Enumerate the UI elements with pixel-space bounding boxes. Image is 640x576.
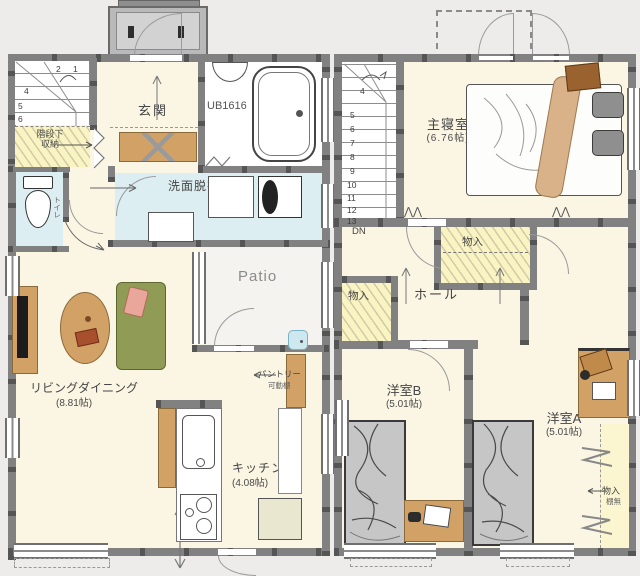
f2-stair-number: 12 (347, 205, 356, 215)
patio-door-opening (214, 346, 254, 351)
living-label: リビングダイニング (30, 382, 138, 396)
bath-window (321, 78, 335, 142)
f1-wall-washroom-left (108, 166, 115, 182)
room-b-window-bottom (344, 543, 436, 559)
hall-arrow-1 (400, 262, 412, 304)
pantry-arrow (250, 371, 276, 379)
f1-wall-genkan-bath (198, 58, 205, 170)
master-pillow-2 (592, 130, 624, 156)
f1-stair-number: 5 (18, 101, 23, 111)
bath-fold-door (206, 156, 236, 168)
room-a-window-right (627, 360, 640, 416)
refrigerator (258, 498, 302, 540)
closet-top (441, 227, 530, 283)
closet-top-label: 物入 (462, 236, 483, 248)
living-deck-hatch (14, 558, 110, 568)
room-b-sill-hatch (350, 558, 432, 567)
f2-stair-number: 5 (350, 110, 355, 120)
room-a-sill-hatch (506, 558, 570, 567)
kitchen-door-opening (218, 549, 256, 555)
terrace-opening-mask-2 (533, 56, 569, 60)
closet-slide-mark: ⋀⋀ (404, 206, 422, 219)
roomb-door-opening (410, 341, 448, 348)
closet-right-note: 棚無 (606, 498, 621, 507)
kitchen-faucet (196, 458, 205, 467)
f2-stair-number: 8 (350, 152, 355, 162)
closet-left-label: 物入 (348, 290, 369, 302)
f2-stair-number: 9 (350, 166, 355, 176)
f2-stair-number: 13 (347, 216, 356, 226)
stairs-dn-label: DN (352, 227, 366, 238)
room-b-laptop (423, 504, 452, 527)
floor-plan-canvas: 2 1 4 5 6 階段下 収納 トイレ 玄関 (0, 0, 640, 576)
f1-left-window-1 (5, 256, 20, 296)
garden-fixture-dot (300, 340, 303, 343)
living-size: (8.81帖) (56, 398, 92, 410)
f2-wall-hall-roomb (334, 340, 478, 349)
terrace-door-arc-2 (532, 13, 570, 56)
room-b-label: 洋室B (5.01帖) (364, 384, 444, 410)
f2-wall-closet-left-right (391, 276, 398, 346)
master-bedroom-window (627, 88, 640, 170)
f1-wall-toilet-right (63, 166, 69, 222)
bath-faucet (296, 110, 303, 117)
room-a-window-bottom (500, 543, 574, 559)
f1-stair-number: 1 (73, 64, 78, 74)
f1-wall-kitchen-island (156, 400, 222, 408)
stove-burner-2 (196, 518, 212, 534)
f1-stair-number: 2 (56, 64, 61, 74)
f1-wall-patio-bottom (192, 345, 330, 352)
kitchen-counter-2 (278, 408, 302, 494)
f1-stair-number: 4 (24, 86, 29, 96)
kitchen-label: キッチン (232, 462, 284, 476)
f2-stair-number: 7 (350, 138, 355, 148)
washroom-cabinet (148, 212, 194, 242)
closet-right-arrow (584, 487, 606, 495)
washbasin-counter (208, 176, 254, 218)
bath-label: UB1616 (207, 100, 247, 113)
f2-stair-number: 4 (360, 86, 365, 96)
washroom-window (321, 184, 335, 228)
room-b-chair (408, 512, 421, 522)
room-b-window-left (335, 400, 349, 456)
toilet-tank (23, 176, 53, 189)
dining-table (60, 292, 110, 364)
room-a-bed-texture (472, 420, 534, 546)
genkan-step-line (110, 127, 198, 128)
kitchen-door-arc (218, 556, 256, 576)
patio-left-window (192, 252, 206, 344)
f1-stair-number: 6 (18, 114, 23, 124)
terrace-opening-mask-1 (479, 56, 513, 60)
f2-wall-closet-left-top (342, 276, 398, 283)
genkan-arrow (152, 70, 162, 120)
hanger-symbol-1 (580, 444, 614, 470)
entrance-opening (130, 55, 182, 61)
f1-left-window-2 (5, 418, 20, 458)
f1-bifold-door (92, 128, 106, 168)
master-pillow-1 (592, 92, 624, 118)
f2-stair-number: 11 (347, 193, 356, 203)
shoe-cabinet (119, 132, 197, 162)
closet-slide-mark: ⋀⋀ (552, 206, 570, 219)
kitchen-cabinet (158, 408, 176, 488)
stove-burner-3 (185, 508, 194, 517)
bedside-chest (565, 62, 602, 91)
room-b-bed-texture (344, 420, 406, 546)
tv (17, 296, 28, 358)
kitchen-window (321, 414, 335, 474)
living-arrow (60, 216, 110, 256)
patio-window (321, 262, 335, 328)
table-cup (85, 316, 91, 322)
room-a-paper (592, 382, 616, 400)
garden-fixture (288, 330, 308, 350)
f2-wall-left (334, 54, 342, 556)
pantry-note: 可動棚 (268, 382, 291, 391)
f1-wall-washroom-bottom (108, 240, 330, 247)
hall-label: ホール (414, 288, 459, 303)
room-a-chair (580, 370, 590, 380)
hanger-symbol-2 (580, 512, 614, 538)
patio-label: Patio (238, 268, 277, 285)
hall-arrow (90, 183, 142, 193)
living-window (14, 543, 108, 559)
f2-stair-number: 10 (347, 180, 356, 190)
stove-burner-1 (196, 497, 212, 513)
porch-light-left (128, 26, 134, 38)
f2-stair-number: 6 (350, 124, 355, 134)
hall-arrow-2 (494, 262, 506, 304)
closet-top-shelf-line (443, 252, 528, 253)
kitchen-size: (4.08帖) (232, 478, 268, 490)
washing-machine-drum (262, 180, 278, 214)
bedroom-door-opening (408, 219, 446, 226)
